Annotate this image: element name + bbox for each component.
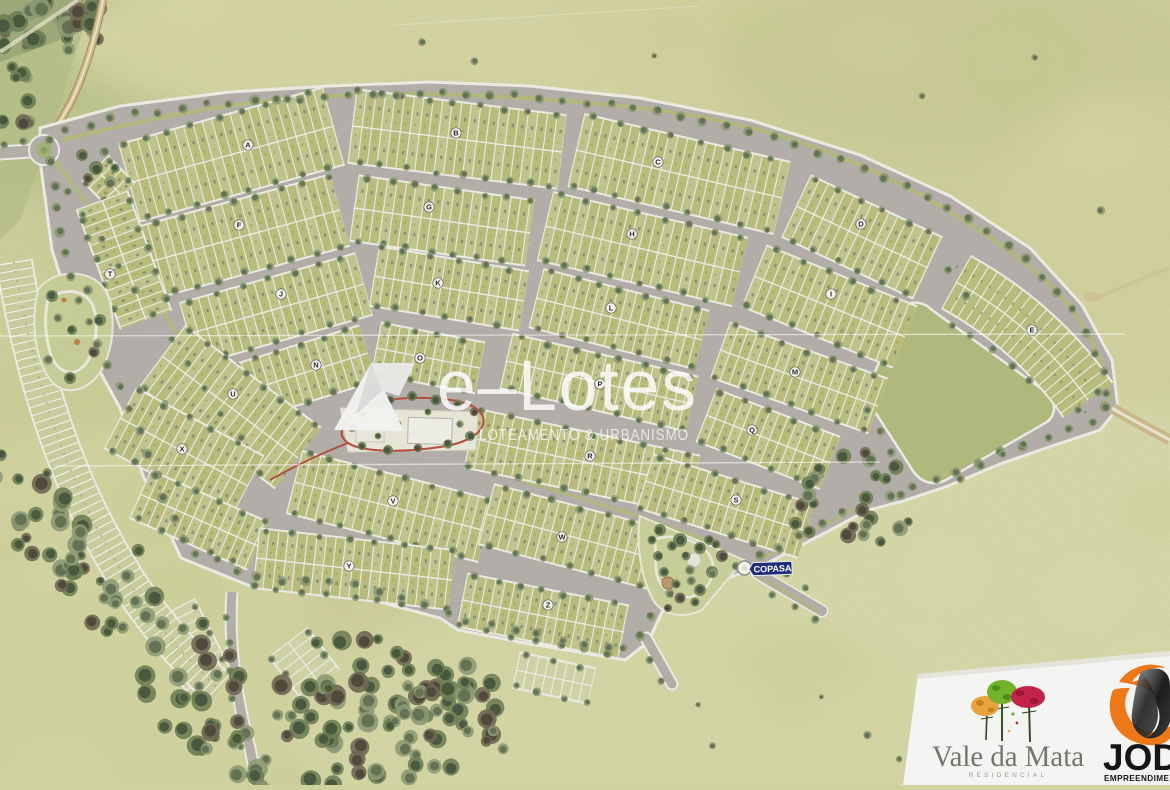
svg-text:JOD: JOD [1103,737,1170,778]
svg-text:Vale da Mata: Vale da Mata [932,740,1084,773]
svg-text:e–Lotes: e–Lotes [437,347,698,426]
svg-text:LOTEAMENTO & URBANISMO: LOTEAMENTO & URBANISMO [479,427,689,444]
svg-text:EMPREENDIME: EMPREENDIME [1104,774,1169,783]
svg-text:COPASA: COPASA [753,563,792,574]
svg-text:RESIDENCIAL: RESIDENCIAL [969,772,1048,779]
